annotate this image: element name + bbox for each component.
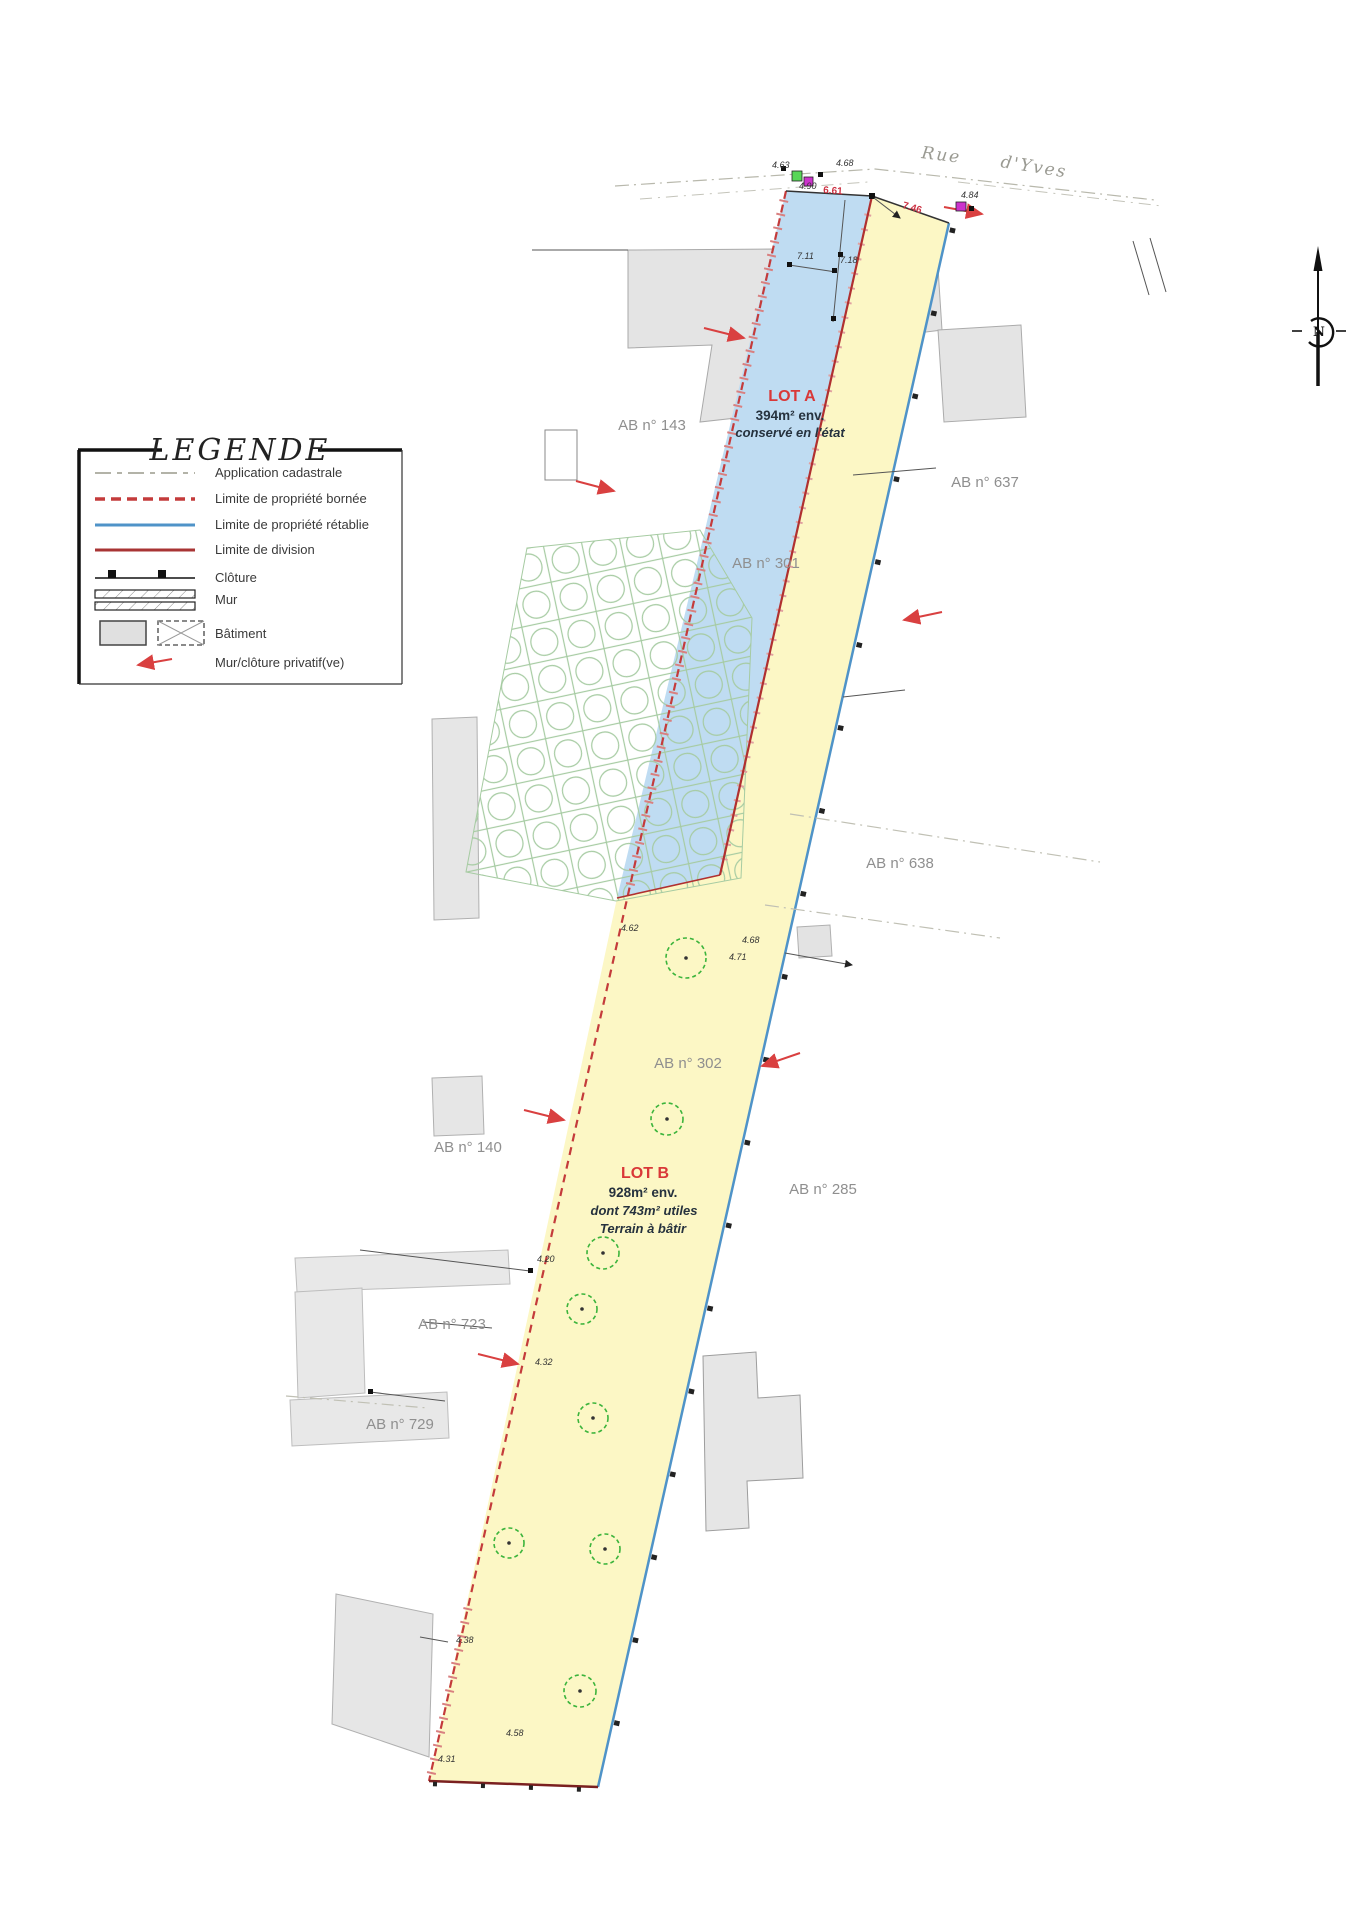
building-east-small bbox=[797, 925, 832, 958]
elevation-label: 4.62 bbox=[621, 923, 639, 933]
street-word-rue: Rue bbox=[919, 143, 962, 168]
legend-item-label: Application cadastrale bbox=[215, 465, 342, 480]
legend-item-label: Mur bbox=[215, 592, 238, 607]
north-label: N bbox=[1313, 325, 1325, 340]
street-axis-line bbox=[615, 169, 1155, 200]
wall-stroke-1 bbox=[1133, 241, 1149, 295]
elevation-label: 4.31 bbox=[438, 1754, 456, 1764]
red-arrow-icon bbox=[478, 1354, 518, 1364]
legend-item-label: Limite de division bbox=[215, 542, 315, 557]
lot-b-detail: dont 743m² utiles bbox=[591, 1203, 698, 1218]
dimension-label: 7.18 bbox=[840, 255, 858, 265]
red-arrow-icon bbox=[524, 1110, 564, 1120]
cadastral-plan: Rue d'Yves LOT A 394m² env. conservé en … bbox=[0, 0, 1364, 1920]
building-ab723-wing bbox=[295, 1288, 365, 1398]
legend-title: LEGENDE bbox=[149, 433, 331, 468]
elevation-label: 4.84 bbox=[961, 190, 979, 200]
elevation-label: 4.38 bbox=[456, 1635, 474, 1645]
lot-b-note: Terrain à bâtir bbox=[600, 1221, 687, 1236]
street-edge-line-2 bbox=[958, 182, 1162, 206]
fence-square bbox=[368, 1389, 373, 1394]
elevation-label: 4.58 bbox=[506, 1728, 524, 1738]
legend-item-label: Clôture bbox=[215, 570, 257, 585]
cadastral-line-east-1 bbox=[790, 814, 1100, 862]
dimension-label: 6.61 bbox=[823, 185, 844, 197]
parcel-label-729: AB n° 729 bbox=[366, 1416, 434, 1433]
borne-icon bbox=[969, 206, 974, 211]
elevation-label: 4.90 bbox=[799, 181, 817, 191]
red-arrow-icon bbox=[904, 612, 942, 620]
legend-item-label: Bâtiment bbox=[215, 626, 267, 641]
building-ab140 bbox=[432, 1076, 484, 1136]
building-ab723-band bbox=[295, 1250, 510, 1292]
swatch-batiment bbox=[100, 621, 204, 645]
parcel-label-285: AB n° 285 bbox=[789, 1181, 857, 1198]
building-ab637 bbox=[938, 325, 1026, 422]
magenta-marker-icon bbox=[956, 202, 966, 211]
legend-box: LEGENDE Application cadastrale Limite de… bbox=[78, 433, 402, 684]
parcel-label-143: AB n° 143 bbox=[618, 417, 686, 434]
lot-a-area: 394m² env. bbox=[756, 408, 825, 423]
lot-a-note: conservé en l'état bbox=[735, 425, 845, 440]
lot-a-name: LOT A bbox=[768, 388, 816, 405]
parcel-label-301: AB n° 301 bbox=[732, 555, 800, 572]
fence-square bbox=[787, 262, 792, 267]
lot-b-polygon bbox=[429, 196, 949, 1787]
street-lines bbox=[615, 169, 1162, 206]
building-west-bar bbox=[432, 717, 479, 920]
lot-b-name: LOT B bbox=[621, 1165, 669, 1182]
legend-item-label: Mur/clôture privatif(ve) bbox=[215, 655, 344, 670]
wall-stroke-2 bbox=[1150, 238, 1166, 292]
north-arrowhead bbox=[1314, 246, 1323, 271]
fence-square bbox=[832, 268, 837, 273]
street-word-yves: d'Yves bbox=[999, 152, 1068, 182]
elevation-label: 4.63 bbox=[772, 160, 790, 170]
dimension-label: 7.11 bbox=[797, 251, 814, 261]
building-east-stepped bbox=[703, 1352, 803, 1531]
swatch-mur-privatif-arrow bbox=[138, 659, 172, 665]
plan-svg: Rue d'Yves LOT A 394m² env. conservé en … bbox=[0, 0, 1364, 1920]
elevation-label: 4.32 bbox=[535, 1357, 553, 1367]
building-outline-small bbox=[545, 430, 577, 480]
fence-square bbox=[528, 1268, 533, 1273]
parcel-label-140: AB n° 140 bbox=[434, 1139, 502, 1156]
elevation-label: 4.20 bbox=[537, 1254, 555, 1264]
building-southwest bbox=[332, 1594, 433, 1757]
line-east-mid bbox=[843, 690, 905, 697]
parcel-label-637: AB n° 637 bbox=[951, 474, 1019, 491]
fence-square bbox=[831, 316, 836, 321]
elevation-label: 4.68 bbox=[742, 935, 760, 945]
elevation-label: 4.68 bbox=[836, 158, 854, 168]
parcel-label-723: AB n° 723 bbox=[418, 1316, 486, 1333]
legend-item-label: Limite de propriété rétablie bbox=[215, 517, 369, 532]
legend-item-label: Limite de propriété bornée bbox=[215, 491, 367, 506]
elevation-label: 4.71 bbox=[729, 952, 747, 962]
swatch-mur bbox=[95, 590, 195, 610]
red-arrow-icon bbox=[576, 481, 614, 491]
parcel-label-638: AB n° 638 bbox=[866, 855, 934, 872]
paved-grid-area bbox=[466, 530, 752, 901]
green-marker-icon bbox=[792, 171, 802, 181]
north-arrow: N bbox=[1292, 246, 1346, 386]
lot-b-area: 928m² env. bbox=[609, 1185, 678, 1200]
swatch-cloture bbox=[95, 570, 195, 578]
street-name: Rue d'Yves bbox=[919, 143, 1068, 182]
parcel-label-302: AB n° 302 bbox=[654, 1055, 722, 1072]
borne-icon bbox=[818, 172, 823, 177]
